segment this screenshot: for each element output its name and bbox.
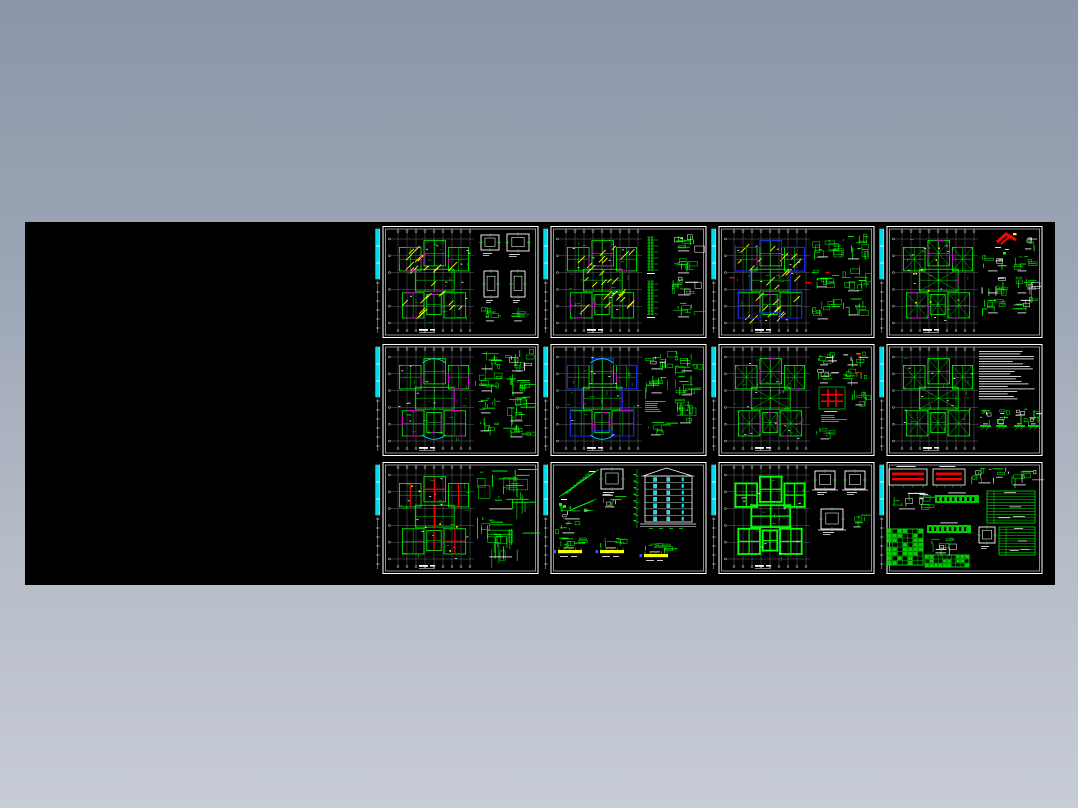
sheet-10-stair-details-and-elevation — [543, 461, 708, 575]
sheet-7-roof-plan-with-red-grid-detail — [711, 343, 876, 457]
sheet-8-roof-plan-with-general-notes — [879, 343, 1044, 457]
sheet-3-floor-framing-plan-blue-outline — [711, 225, 876, 339]
drawing-preview-canvas — [25, 222, 1055, 585]
sheet-6-beam-layout-plan-blue-outline — [543, 343, 708, 457]
sheet-1-floor-framing-plan-with-column-details — [375, 225, 540, 339]
sheet-9-framing-plan-red-beams — [375, 461, 540, 575]
sheet-5-beam-layout-plan-magenta — [375, 343, 540, 457]
sheet-4-roof-framing-plan-with-red-gable-detail — [879, 225, 1044, 339]
cad-preview-page: { "window": { "description": "Preview im… — [0, 0, 1078, 808]
sheet-11-foundation-plan — [711, 461, 876, 575]
sheet-12-member-details-and-schedules — [879, 461, 1044, 575]
sheet-2-floor-framing-plan-with-section-details — [543, 225, 708, 339]
